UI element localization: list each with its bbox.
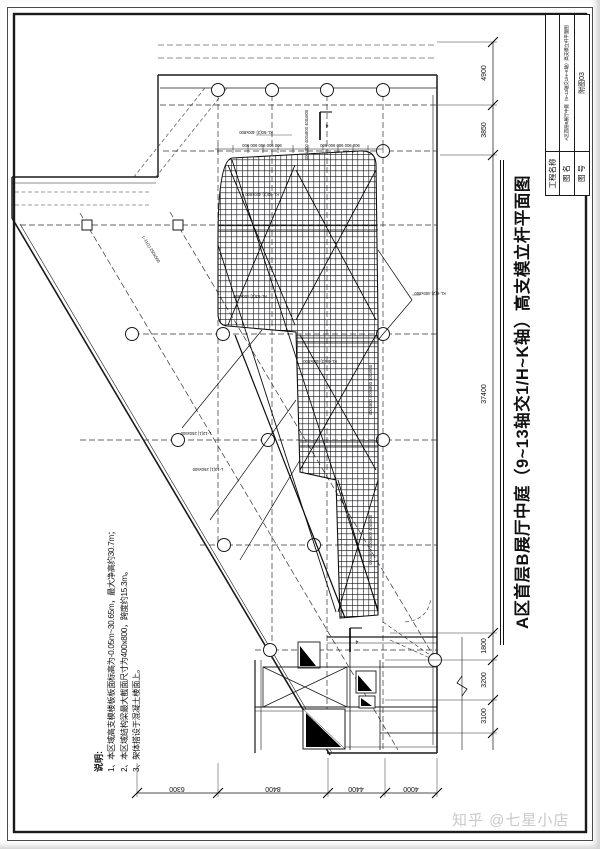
dim-value: 4400 bbox=[348, 785, 364, 792]
axis-bubble bbox=[321, 84, 334, 97]
zhihu-watermark: 知乎 @七星小店 bbox=[452, 809, 594, 833]
beam-label: L-13(1) 250x500 bbox=[192, 467, 223, 472]
axis-bubble bbox=[126, 328, 139, 341]
drawing-name-label: 图 名 bbox=[560, 151, 574, 195]
dim-value: 6300 bbox=[169, 785, 185, 792]
axis-bubble bbox=[217, 328, 230, 341]
dim-value: 3100 bbox=[481, 708, 488, 724]
scaffold-zone bbox=[182, 145, 412, 618]
drawing-number-label: 图 号 bbox=[575, 151, 589, 195]
notes-heading: 说明: bbox=[92, 472, 105, 772]
beam-label: L-12(1) 250x500 bbox=[180, 431, 211, 436]
drawing-name-value: A区首层B展厅中庭（9~13轴交1/H~K轴）高支模立杆平面图 bbox=[560, 15, 574, 151]
axis-bubble bbox=[262, 434, 275, 447]
title-block: 工程名称 图 名 A区首层B展厅中庭（9~13轴交1/H~K轴）高支模立杆平面图… bbox=[545, 14, 590, 196]
section-mark-number: 4 bbox=[325, 122, 328, 128]
axis-bubble bbox=[212, 84, 225, 97]
dim-value: 3200 bbox=[481, 672, 488, 688]
dim-value: 1800 bbox=[481, 638, 488, 654]
dim-value: 3850 bbox=[481, 122, 488, 138]
spacing-values: 900 900 900 900 900 bbox=[242, 143, 282, 148]
spacing-values: 900 900 900 900 900 bbox=[320, 143, 360, 148]
column-size-strip: 400x800 400x800 400x800 bbox=[304, 109, 309, 160]
beam-label: KL-55(3) 400x800 bbox=[303, 359, 337, 364]
beam-label: KL-52(3) 400x800 bbox=[245, 192, 279, 197]
project-name-value bbox=[546, 15, 560, 151]
drawing-title: A区首层B展厅中庭（9~13轴交1/H~K轴）高支模立杆平面图 bbox=[504, 156, 538, 648]
beam-label: KL-53(3) 400x800 bbox=[233, 294, 267, 299]
dim-value: 37400 bbox=[481, 384, 488, 404]
notes-block: 说明: 1、本区域高支模楼板板面标高为-0.05m~30.65m，最大净高约30… bbox=[92, 472, 156, 772]
beam-label: KL-6(2) 400x800 bbox=[414, 291, 446, 296]
note-item: 3、架体搭设于混凝土楼面上。 bbox=[131, 472, 144, 772]
bottom-dimension-chain: 6300 8400 4400 4000 bbox=[132, 758, 442, 798]
note-item: 2、本区域结构梁最大截面尺寸为400x800，跨度约15.3m。 bbox=[119, 472, 132, 772]
dim-value: 4900 bbox=[481, 65, 488, 81]
beam-label: KL-50(3) 400x800 bbox=[239, 130, 273, 135]
dim-value: 4000 bbox=[403, 785, 419, 792]
axis-bubble bbox=[218, 539, 231, 552]
dim-value: 8400 bbox=[265, 785, 281, 792]
axis-bubble bbox=[266, 84, 279, 97]
drawing-number-value: 附图03 bbox=[575, 15, 589, 151]
stair-detail bbox=[255, 637, 437, 753]
axis-square-marker bbox=[82, 220, 92, 230]
project-name-label: 工程名称 bbox=[546, 151, 560, 195]
axis-bubble bbox=[264, 644, 277, 657]
axis-square-marker bbox=[173, 220, 183, 230]
note-item: 1、本区域高支模楼板板面标高为-0.05m~30.65m，最大净高约30.7m； bbox=[106, 472, 119, 772]
section-mark-number: 4 bbox=[355, 638, 358, 644]
beam-label: L-11(1) 250x500 bbox=[141, 235, 161, 264]
axis-bubble bbox=[377, 84, 390, 97]
drawing-sheet: 4900 3850 37400 1800 3200 3100 6300 8400… bbox=[0, 0, 600, 849]
column-size-strip: 400x800 400x800 400x800 bbox=[368, 514, 373, 565]
column-size-strip: 400x800 400x800 400x800 bbox=[368, 364, 373, 415]
